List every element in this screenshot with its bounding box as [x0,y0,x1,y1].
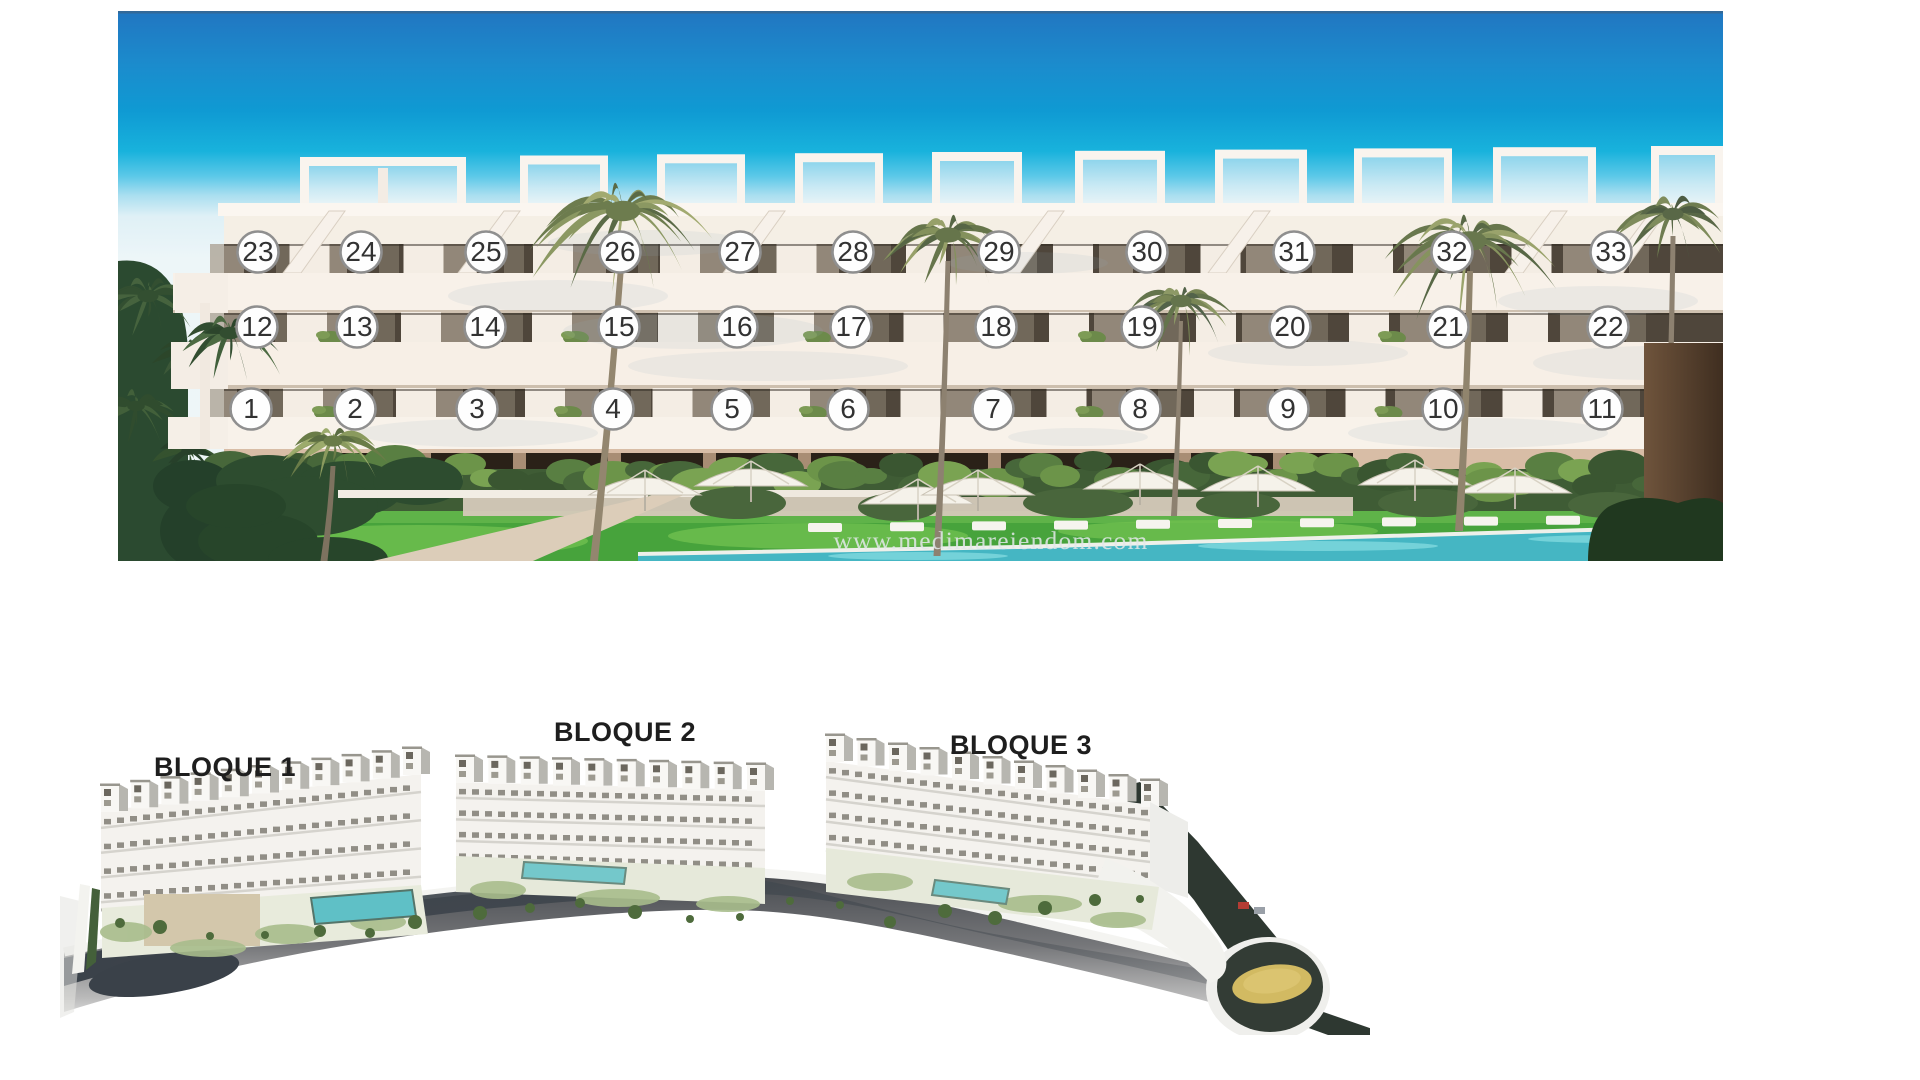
svg-text:8: 8 [1132,393,1148,424]
svg-text:24: 24 [345,236,376,267]
svg-text:14: 14 [469,311,500,342]
svg-text:23: 23 [242,236,273,267]
svg-text:30: 30 [1131,236,1162,267]
svg-text:5: 5 [724,393,740,424]
svg-text:18: 18 [980,311,1011,342]
svg-text:17: 17 [835,311,866,342]
svg-text:www.medimareiendom.com: www.medimareiendom.com [833,526,1148,555]
svg-text:28: 28 [837,236,868,267]
svg-text:26: 26 [604,236,635,267]
svg-text:1: 1 [243,393,259,424]
svg-text:22: 22 [1592,311,1623,342]
svg-text:6: 6 [840,393,856,424]
svg-text:25: 25 [470,236,501,267]
svg-text:27: 27 [724,236,755,267]
svg-text:4: 4 [605,393,621,424]
svg-text:16: 16 [721,311,752,342]
svg-text:20: 20 [1274,311,1305,342]
svg-text:12: 12 [241,311,272,342]
svg-text:BLOQUE 2: BLOQUE 2 [554,717,696,747]
svg-text:3: 3 [469,393,485,424]
svg-text:13: 13 [341,311,372,342]
svg-text:11: 11 [1587,393,1616,424]
svg-text:7: 7 [985,393,1001,424]
svg-text:2: 2 [347,393,363,424]
svg-text:BLOQUE 3: BLOQUE 3 [950,730,1092,760]
svg-text:10: 10 [1427,393,1458,424]
svg-text:BLOQUE 1: BLOQUE 1 [154,752,296,782]
svg-text:32: 32 [1436,236,1467,267]
svg-text:33: 33 [1595,236,1626,267]
svg-text:9: 9 [1280,393,1296,424]
svg-text:31: 31 [1278,236,1309,267]
svg-text:19: 19 [1126,311,1157,342]
svg-text:21: 21 [1432,311,1463,342]
svg-text:29: 29 [983,236,1014,267]
svg-text:15: 15 [603,311,634,342]
